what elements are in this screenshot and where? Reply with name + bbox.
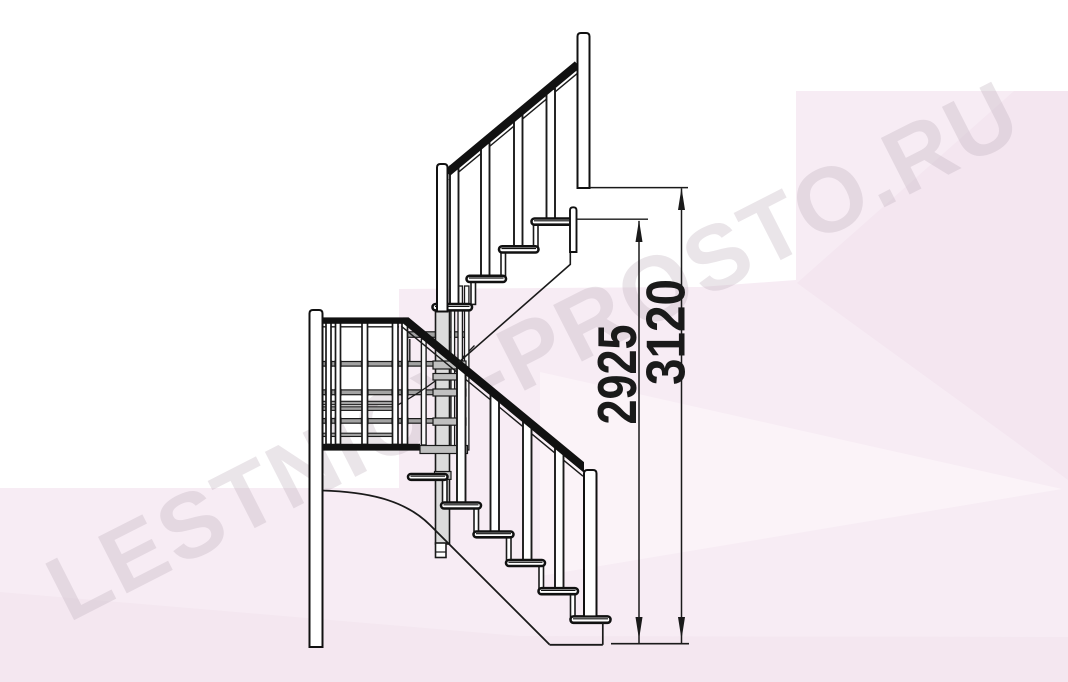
svg-text:3120: 3120 xyxy=(635,279,697,385)
